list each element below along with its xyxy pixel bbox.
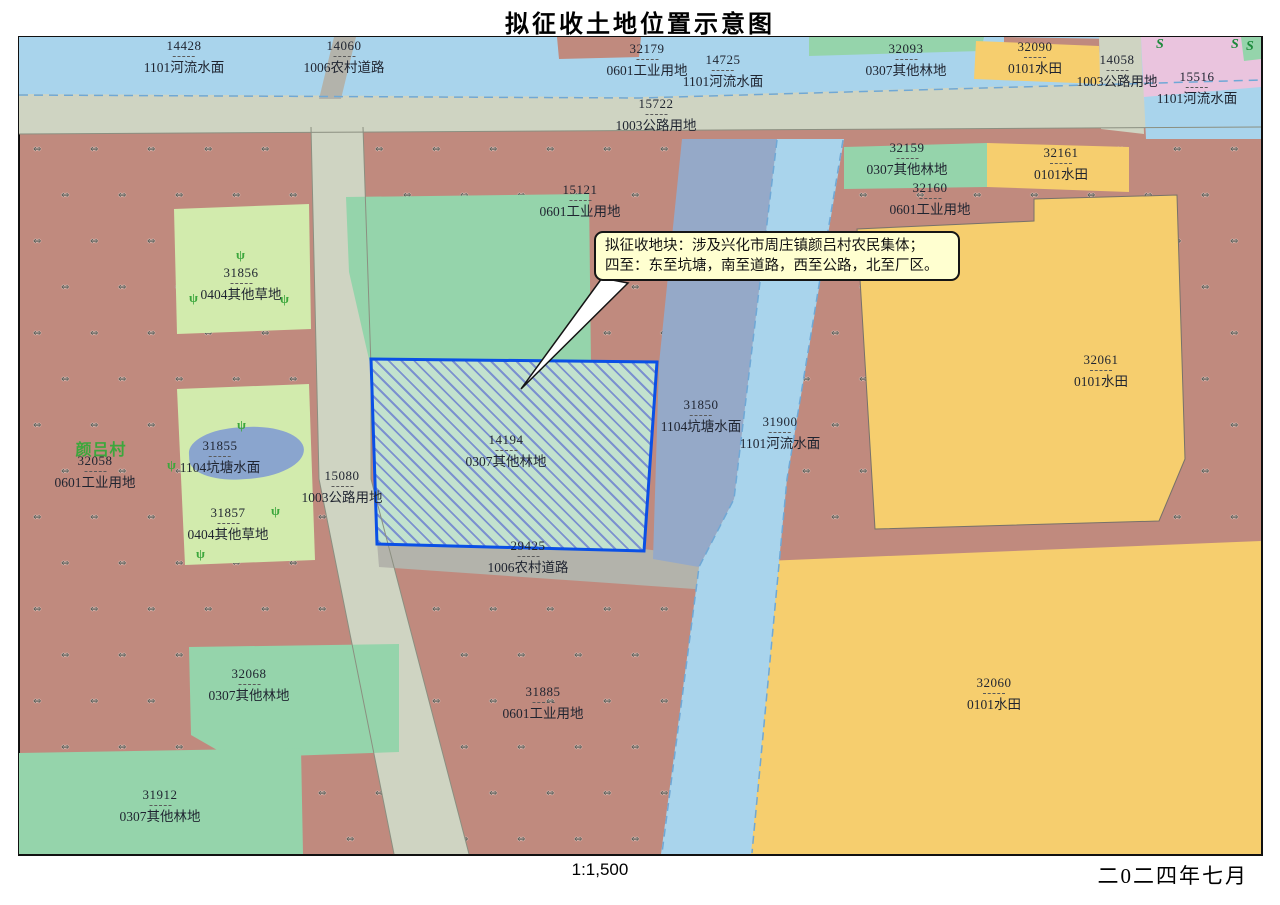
parcel-label-14725: 147251101河流水面 <box>683 53 764 89</box>
label-separator <box>690 415 712 416</box>
parcel-code: 31855 <box>180 439 261 452</box>
label-separator <box>712 70 734 71</box>
parcel-code: 14725 <box>683 53 764 66</box>
parcel-landuse: 1003公路用地 <box>1077 75 1158 89</box>
parcel-label-15080: 150801003公路用地 <box>302 469 383 505</box>
parcel-label-15722: 157221003公路用地 <box>616 97 697 133</box>
parcel-landuse: 1006农村道路 <box>304 61 385 75</box>
label-separator <box>1024 57 1046 58</box>
parcel-label-32068: 320680307其他林地 <box>209 667 290 703</box>
label-separator <box>495 450 517 451</box>
parcel-label-32159: 321590307其他林地 <box>867 141 948 177</box>
parcel-code: 32058 <box>55 454 136 467</box>
parcel-landuse: 1101河流水面 <box>1157 92 1238 106</box>
parcel-landuse: 0404其他草地 <box>188 528 269 542</box>
map-canvas: ⇔⇔⇔⇔⇔⇔⇔⇔⇔⇔⇔⇔⇔⇔⇔⇔⇔⇔⇔⇔⇔⇔⇔⇔⇔⇔⇔⇔⇔⇔⇔⇔⇔⇔⇔⇔⇔⇔⇔⇔… <box>19 37 1262 855</box>
parcel-label-31912: 319120307其他林地 <box>120 788 201 824</box>
parcel-label-29425: 294251006农村道路 <box>488 539 569 575</box>
parcel-code: 32068 <box>209 667 290 680</box>
parcel-code: 14058 <box>1077 53 1158 66</box>
parcel-label-32060: 320600101水田 <box>967 676 1021 712</box>
parcel-code: 14428 <box>144 39 225 52</box>
parcel-code: 14060 <box>304 39 385 52</box>
parcel-code: 15516 <box>1157 70 1238 83</box>
parcel-landuse: 0101水田 <box>1074 375 1128 389</box>
parcel-landuse: 0307其他林地 <box>120 810 201 824</box>
parcel-label-31856: 318560404其他草地 <box>201 266 282 302</box>
parcel-code: 31900 <box>740 415 821 428</box>
parcel-label-31900: 319001101河流水面 <box>740 415 821 451</box>
parcel-landuse: 0601工业用地 <box>890 203 971 217</box>
parcel-landuse: 0601工业用地 <box>540 205 621 219</box>
label-separator <box>919 198 941 199</box>
label-separator <box>517 556 539 557</box>
label-separator <box>173 56 195 57</box>
parcel-label-32160: 321600601工业用地 <box>890 181 971 217</box>
parcel-code: 32093 <box>866 42 947 55</box>
parcel-landuse: 0101水田 <box>1008 62 1062 76</box>
parcel-landuse: 0601工业用地 <box>503 707 584 721</box>
parcel-landuse: 1003公路用地 <box>616 119 697 133</box>
parcel-label-14194: 141940307其他林地 <box>466 433 547 469</box>
parcel-code: 15080 <box>302 469 383 482</box>
land-acquisition-map-page: 拟征收土地位置示意图 ⇔⇔⇔⇔⇔⇔⇔⇔⇔⇔⇔⇔⇔⇔⇔⇔⇔⇔⇔⇔⇔⇔⇔⇔⇔⇔⇔⇔⇔… <box>0 0 1280 905</box>
parcel-code: 15722 <box>616 97 697 110</box>
label-separator <box>1050 163 1072 164</box>
label-separator <box>149 805 171 806</box>
label-separator <box>84 471 106 472</box>
parcel-code: 31850 <box>661 398 742 411</box>
label-separator <box>1090 370 1112 371</box>
parcel-label-32058: 320580601工业用地 <box>55 454 136 490</box>
parcel-code: 32160 <box>890 181 971 194</box>
parcel-code: 32161 <box>1034 146 1088 159</box>
parcel-label-15516: 155161101河流水面 <box>1157 70 1238 106</box>
label-separator <box>333 56 355 57</box>
map-date: 二0二四年七月 <box>1098 860 1249 890</box>
parcel-label-31850: 318501104坑塘水面 <box>661 398 742 434</box>
label-separator <box>1106 70 1128 71</box>
parcel-landuse: 0307其他林地 <box>866 64 947 78</box>
parcel-landuse: 1104坑塘水面 <box>661 420 742 434</box>
parcel-label-31857: 318570404其他草地 <box>188 506 269 542</box>
label-separator <box>532 702 554 703</box>
label-separator <box>1186 87 1208 88</box>
parcel-code: 31856 <box>201 266 282 279</box>
parcel-code: 32179 <box>607 42 688 55</box>
parcel-label-31855: 318551104坑塘水面 <box>180 439 261 475</box>
parcel-label-31885: 318850601工业用地 <box>503 685 584 721</box>
parcel-label-15121: 151210601工业用地 <box>540 183 621 219</box>
label-separator <box>769 432 791 433</box>
parcel-label-32093: 320930307其他林地 <box>866 42 947 78</box>
map-scale: 1:1,500 <box>520 860 680 880</box>
parcel-landuse: 0601工业用地 <box>607 64 688 78</box>
label-separator <box>983 693 1005 694</box>
label-separator <box>217 523 239 524</box>
parcel-code: 31885 <box>503 685 584 698</box>
parcel-landuse: 1003公路用地 <box>302 491 383 505</box>
parcel-label-14428: 144281101河流水面 <box>144 39 225 75</box>
label-separator <box>645 114 667 115</box>
label-separator <box>238 684 260 685</box>
label-separator <box>230 283 252 284</box>
parcel-label-14060: 140601006农村道路 <box>304 39 385 75</box>
label-separator <box>331 486 353 487</box>
parcel-label-32090: 320900101水田 <box>1008 40 1062 76</box>
parcel-code: 32159 <box>867 141 948 154</box>
parcel-landuse: 0601工业用地 <box>55 476 136 490</box>
parcel-landuse: 1104坑塘水面 <box>180 461 261 475</box>
parcel-label-32061: 320610101水田 <box>1074 353 1128 389</box>
parcel-landuse: 1101河流水面 <box>740 437 821 451</box>
parcel-code: 32090 <box>1008 40 1062 53</box>
parcel-landuse: 1101河流水面 <box>144 61 225 75</box>
parcel-landuse: 0404其他草地 <box>201 288 282 302</box>
parcel-landuse: 0307其他林地 <box>209 689 290 703</box>
page-title: 拟征收土地位置示意图 <box>0 4 1280 39</box>
label-separator <box>209 456 231 457</box>
parcel-label-32179: 321790601工业用地 <box>607 42 688 78</box>
parcel-code: 32061 <box>1074 353 1128 366</box>
parcel-label-layer: 144281101河流水面140601006农村道路321790601工业用地1… <box>19 37 1262 855</box>
label-separator <box>895 59 917 60</box>
parcel-code: 32060 <box>967 676 1021 689</box>
parcel-code: 29425 <box>488 539 569 552</box>
label-separator <box>569 200 591 201</box>
label-separator <box>896 158 918 159</box>
parcel-label-32161: 321610101水田 <box>1034 146 1088 182</box>
parcel-code: 14194 <box>466 433 547 446</box>
parcel-landuse: 0307其他林地 <box>466 455 547 469</box>
parcel-code: 31857 <box>188 506 269 519</box>
parcel-landuse: 1101河流水面 <box>683 75 764 89</box>
parcel-landuse: 0101水田 <box>967 698 1021 712</box>
parcel-label-14058: 140581003公路用地 <box>1077 53 1158 89</box>
parcel-code: 31912 <box>120 788 201 801</box>
parcel-code: 15121 <box>540 183 621 196</box>
parcel-landuse: 0307其他林地 <box>867 163 948 177</box>
label-separator <box>636 59 658 60</box>
parcel-landuse: 1006农村道路 <box>488 561 569 575</box>
parcel-landuse: 0101水田 <box>1034 168 1088 182</box>
